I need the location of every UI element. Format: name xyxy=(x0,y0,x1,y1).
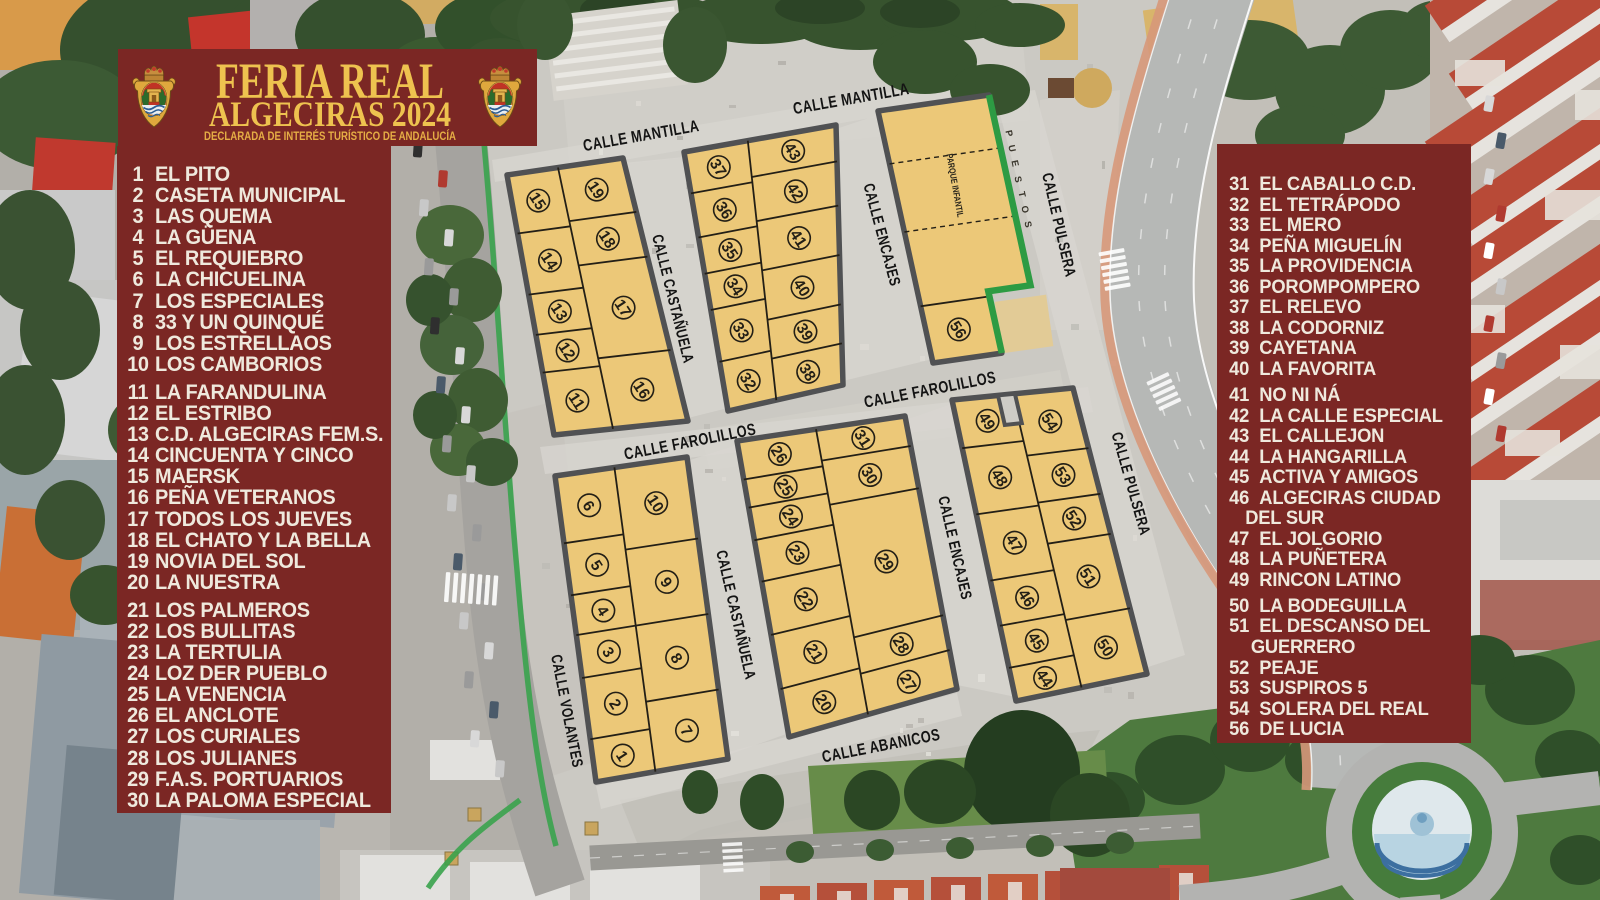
svg-text:ALGECIRAS 2024: ALGECIRAS 2024 xyxy=(209,94,451,134)
svg-text:DECLARADA DE INTERÉS TURÍSTICO: DECLARADA DE INTERÉS TURÍSTICO DE ANDALU… xyxy=(204,130,456,143)
